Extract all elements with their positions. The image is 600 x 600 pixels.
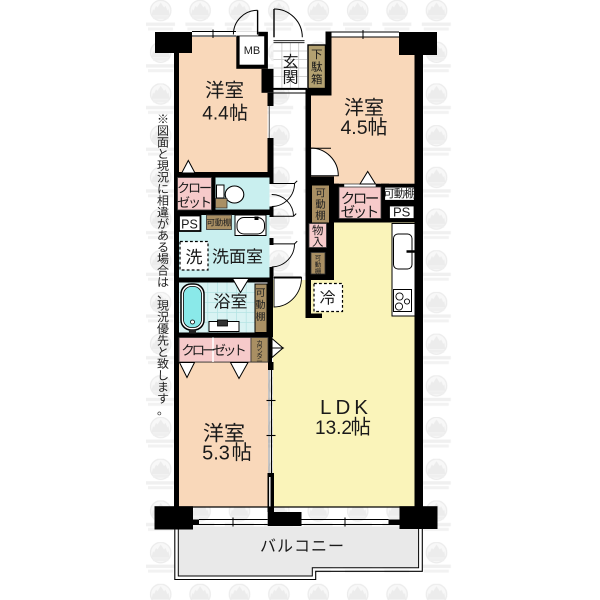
svg-text:4.5: 4.5 — [340, 117, 367, 139]
svg-text:5.3: 5.3 — [202, 443, 230, 465]
svg-text:4.4: 4.4 — [202, 104, 229, 125]
svg-text:PS: PS — [181, 218, 198, 232]
svg-text:LDK: LDK — [320, 396, 372, 419]
svg-text:PS: PS — [393, 205, 411, 220]
svg-text:MB: MB — [244, 45, 261, 57]
svg-text:13.2: 13.2 — [315, 418, 352, 439]
